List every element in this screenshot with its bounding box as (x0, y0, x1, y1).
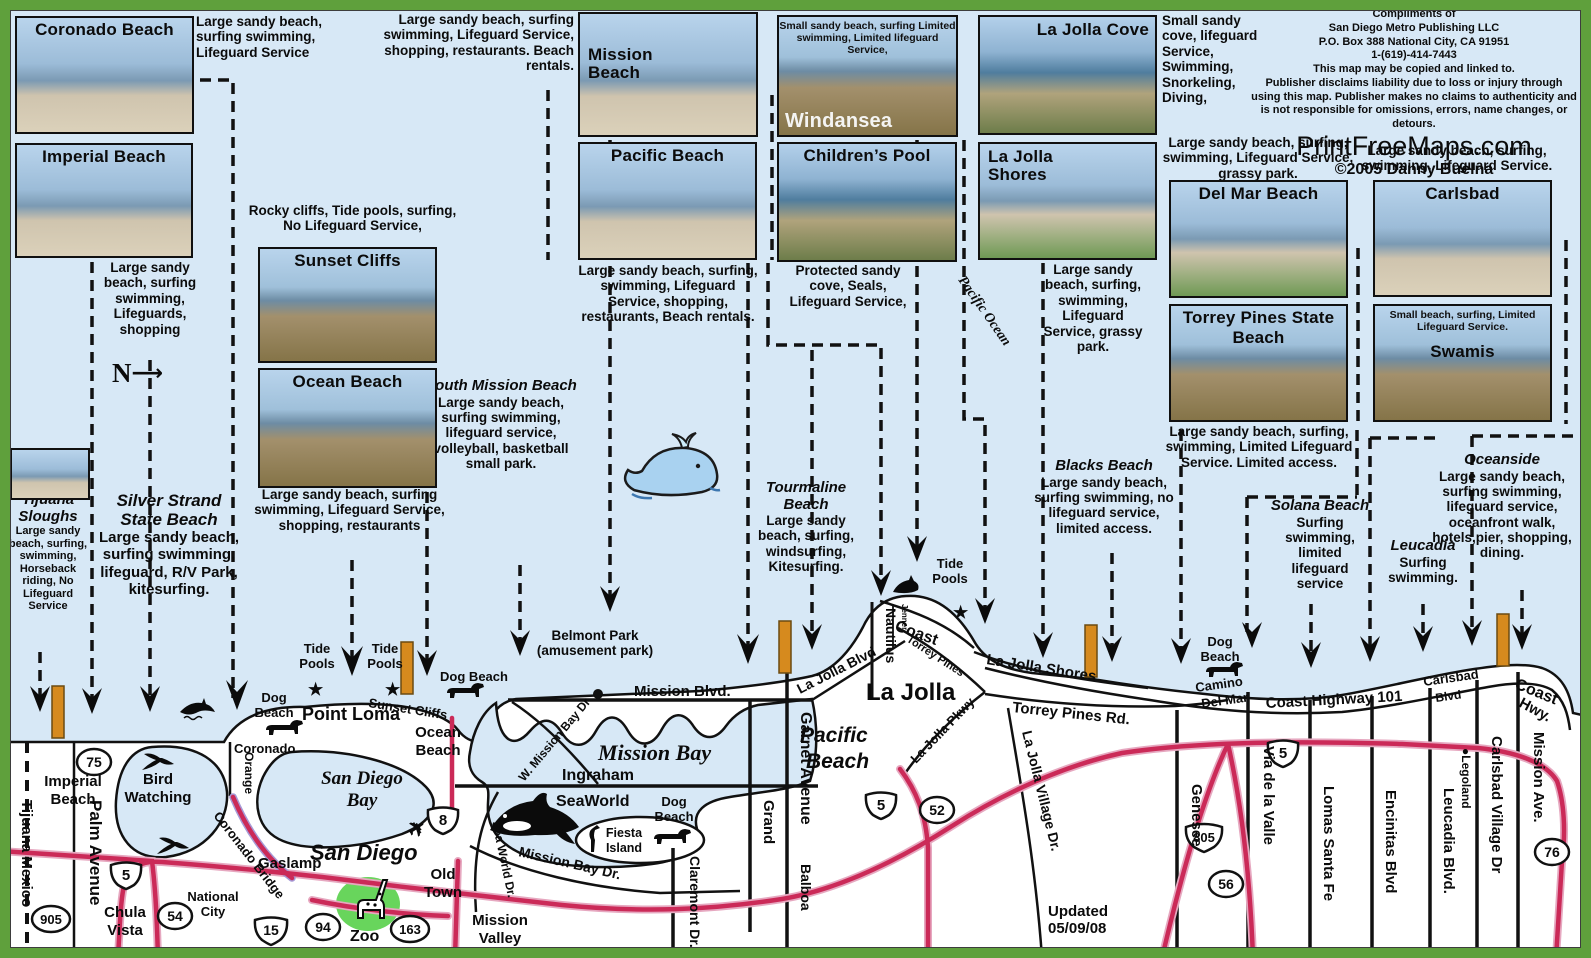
photo-title: Children’s Pool (779, 146, 955, 166)
route-163-shield: 163 (391, 916, 429, 942)
north-letter: N (112, 358, 132, 388)
svg-text:54: 54 (167, 908, 183, 924)
note-belmont-park: Belmont Park(amusement park) (516, 628, 674, 659)
note-solana-beach: Solana BeachSurfing swimming, limited li… (1268, 498, 1372, 591)
label-pacific-beach: Pacific (800, 724, 868, 747)
photo-la-jolla-cove: La Jolla Cove (978, 15, 1157, 135)
photo-ocean-beach: Ocean Beach (258, 368, 437, 488)
label-dog-beach: Dog (661, 794, 686, 809)
label-leucadia-blvd: Leucadia Blvd. (1440, 788, 1457, 894)
photo-title: Windansea (785, 110, 945, 133)
route-54-shield: 54 (158, 903, 192, 929)
photo-coronado-beach: Coronado Beach (15, 16, 194, 134)
label-dog-beach: Dog (1207, 634, 1232, 649)
svg-text:8: 8 (439, 812, 447, 829)
photo-title: Del Mar Beach (1171, 184, 1346, 204)
label-bird-watching: Bird (143, 771, 173, 788)
label-mission-bay: Mission Bay (597, 740, 711, 765)
note-tijuana-sloughs: Tijuana SloughsLarge sandy beach, surfin… (4, 492, 92, 613)
north-arrow: N⟶ (112, 358, 163, 389)
route-56-shield: 56 (1209, 871, 1243, 897)
label-carlsbad-village-dr: Carlsbad Village Dr (1488, 736, 1505, 873)
label-tide-pools: Pools (299, 656, 334, 671)
svg-text:163: 163 (399, 922, 421, 937)
route-75-shield: 75 (77, 749, 111, 775)
note-imperial: Large sandy beach, surfing swimming, Lif… (92, 260, 208, 337)
note-updated-date: Updated 05/09/08 (1048, 903, 1130, 937)
label-encinitas-blvd: Encinitas Blvd (1382, 790, 1399, 893)
photo-la-jolla-shores: La Jolla Shores (978, 142, 1157, 260)
label-grand: Grand (760, 800, 777, 844)
route-76-shield: 76 (1535, 839, 1569, 865)
label-mission-valley: Valley (479, 930, 522, 947)
photo-torrey-pines: Torrey Pines State Beach (1169, 304, 1348, 422)
note-silver-strand: Silver Strand State BeachLarge sandy bea… (96, 492, 242, 598)
label-dog-beach: Dog Beach (440, 669, 508, 684)
label-chula-vista: Chula (104, 904, 146, 921)
beach-map: ✈ ★ ★ ★ 5 5 5 8 15 805 75 905 54 94 163 … (0, 0, 1591, 958)
svg-text:5: 5 (122, 867, 130, 884)
label-san-diego-bay: Bay (346, 790, 378, 811)
label-fiesta-island: Island (606, 841, 642, 855)
label-mission-valley: Mission (472, 912, 528, 929)
label-la-jolla: La Jolla (866, 679, 956, 706)
photo-title: Ocean Beach (260, 372, 435, 392)
photo-swamis: Small beach, surfing, Limited Lifeguard … (1373, 304, 1552, 422)
note-torrey-pines: Large sandy beach, surfing, swimming, Li… (1163, 424, 1355, 470)
label-balboa: Balboa (798, 864, 814, 911)
photo-overlay-note: Small sandy beach, surfing Limited swimm… (779, 20, 956, 56)
label-claremont-dr: Claremont Dr. (687, 856, 703, 948)
svg-text:75: 75 (86, 754, 102, 770)
label-national-city: National (187, 889, 238, 904)
note-tourmaline: Tourmaline BeachLarge sandy beach, surfi… (750, 480, 862, 575)
photo-tijuana-sloughs (10, 448, 90, 500)
svg-text:15: 15 (263, 922, 279, 938)
photo-title: Coronado Beach (17, 20, 192, 40)
photo-title: La Jolla Cove (1029, 21, 1149, 39)
label-san-diego: San Diego (310, 840, 418, 865)
label-genesee: Genesee (1188, 784, 1205, 847)
label-chula-vista: Vista (107, 922, 143, 939)
label-tide-pools: Tide (304, 641, 331, 656)
note-rocky-cliffs: Rocky cliffs, Tide pools, surfing, No Li… (245, 203, 460, 234)
route-52-shield: 52 (920, 797, 954, 823)
label-seaworld: SeaWorld (556, 793, 630, 810)
label-tide-pools: Pools (367, 656, 402, 671)
label-tide-pools: Pools (932, 571, 967, 586)
label-legoland: ●Legoland (1459, 748, 1473, 809)
tide-star-icon: ★ (308, 680, 324, 699)
label-tijuana-mexico: Tijuana Mexico (18, 800, 35, 907)
photo-pacific-beach: Pacific Beach (578, 142, 757, 260)
photo-del-mar-beach: Del Mar Beach (1169, 180, 1348, 298)
photo-title: Sunset Cliffs (260, 251, 435, 271)
label-dog-beach: Dog (261, 690, 286, 705)
svg-text:56: 56 (1218, 876, 1234, 892)
label-nautilus: Nautilus (883, 608, 899, 663)
svg-text:76: 76 (1544, 844, 1560, 860)
svg-text:52: 52 (929, 802, 945, 818)
note-ocean-beach: Large sandy beach, surfing swimming, Lif… (252, 487, 447, 533)
tide-star-icon: ★ (385, 680, 401, 699)
photo-mission-beach: Mission Beach (578, 12, 758, 137)
label-tide-pools: Tide (937, 556, 964, 571)
label-lomas-santa-fe: Lomas Santa Fe (1320, 786, 1337, 901)
note-childrens-pool: Protected sandy cove, Seals, Lifeguard S… (782, 263, 914, 309)
label-old-town: Old (431, 866, 456, 883)
copyright: ©2005 Danny Buelna (1335, 161, 1494, 178)
north-arrow-icon: ⟶ (132, 361, 164, 386)
photo-title: Carlsbad (1375, 184, 1550, 204)
label-imperial-beach: Beach (50, 791, 95, 808)
note-pacific: Large sandy beach, surfing, swimming, Li… (578, 263, 758, 325)
label-dog-beach: Beach (254, 705, 293, 720)
label-fiesta-island: Fiesta (606, 826, 643, 840)
label-orange: Orange (242, 752, 256, 794)
label-bird-watching: Watching (125, 789, 192, 806)
label-mission-ave: Mission Ave. (1530, 732, 1547, 823)
label-pacific-beach: Beach (806, 750, 869, 773)
note-coronado: Large sandy beach, surfing swimming, Lif… (196, 14, 350, 60)
label-san-diego-bay: San Diego (321, 768, 403, 789)
label-ocean-beach: Ocean (415, 724, 461, 741)
photo-overlay-note: Small beach, surfing, Limited Lifeguard … (1375, 309, 1550, 333)
photo-windansea: Small sandy beach, surfing Limited swimm… (777, 15, 958, 137)
label-dog-beach: Beach (1200, 649, 1239, 664)
publisher-block: Compliments of San Diego Metro Publishin… (1240, 8, 1588, 180)
label-zoo: Zoo (350, 928, 380, 945)
photo-title: La Jolla Shores (988, 148, 1088, 184)
photo-title: Mission Beach (588, 46, 684, 82)
photo-title: Imperial Beach (17, 147, 191, 167)
note-mission: Large sandy beach, surfing swimming, Lif… (366, 12, 574, 74)
svg-text:5: 5 (1279, 745, 1287, 762)
label-ingraham: Ingraham (562, 767, 634, 784)
tide-star-icon: ★ (953, 603, 969, 622)
label-palm-avenue: Palm Avenue (86, 800, 105, 906)
note-south-mission: South Mission BeachLarge sandy beach, su… (420, 378, 582, 471)
label-ocean-beach: Beach (415, 742, 460, 759)
svg-text:5: 5 (877, 797, 885, 814)
photo-imperial-beach: Imperial Beach (15, 143, 193, 258)
note-la-jolla-shores: Large sandy beach, surfing, swimming, Li… (1038, 262, 1148, 354)
label-mission-blvd: Mission Blvd. (634, 683, 731, 700)
svg-text:905: 905 (40, 912, 62, 927)
label-dog-beach: Beach (654, 809, 693, 824)
photo-childrens-pool: Children’s Pool (777, 142, 957, 262)
photo-title: Pacific Beach (580, 146, 755, 166)
label-via-de-la-valle: Via de la Valle (1260, 746, 1277, 845)
photo-title: Torrey Pines State Beach (1171, 308, 1346, 348)
label-tide-pools: Tide (372, 641, 399, 656)
photo-sunset-cliffs: Sunset Cliffs (258, 247, 437, 363)
site-name: PrintFreeMaps.com (1296, 131, 1532, 161)
note-blacks-beach: Blacks BeachLarge sandy beach, surfing s… (1033, 458, 1175, 536)
photo-carlsbad: Carlsbad (1373, 180, 1552, 297)
label-imperial-beach: Imperial (44, 773, 102, 790)
note-oceanside: OceansideLarge sandy beach, surfing swim… (1428, 452, 1576, 561)
label-national-city: City (201, 904, 226, 919)
route-905-shield: 905 (32, 906, 70, 932)
svg-text:94: 94 (315, 919, 331, 935)
route-94-shield: 94 (306, 914, 340, 940)
photo-title: Swamis (1375, 342, 1550, 362)
label-old-town: Town (424, 884, 462, 901)
